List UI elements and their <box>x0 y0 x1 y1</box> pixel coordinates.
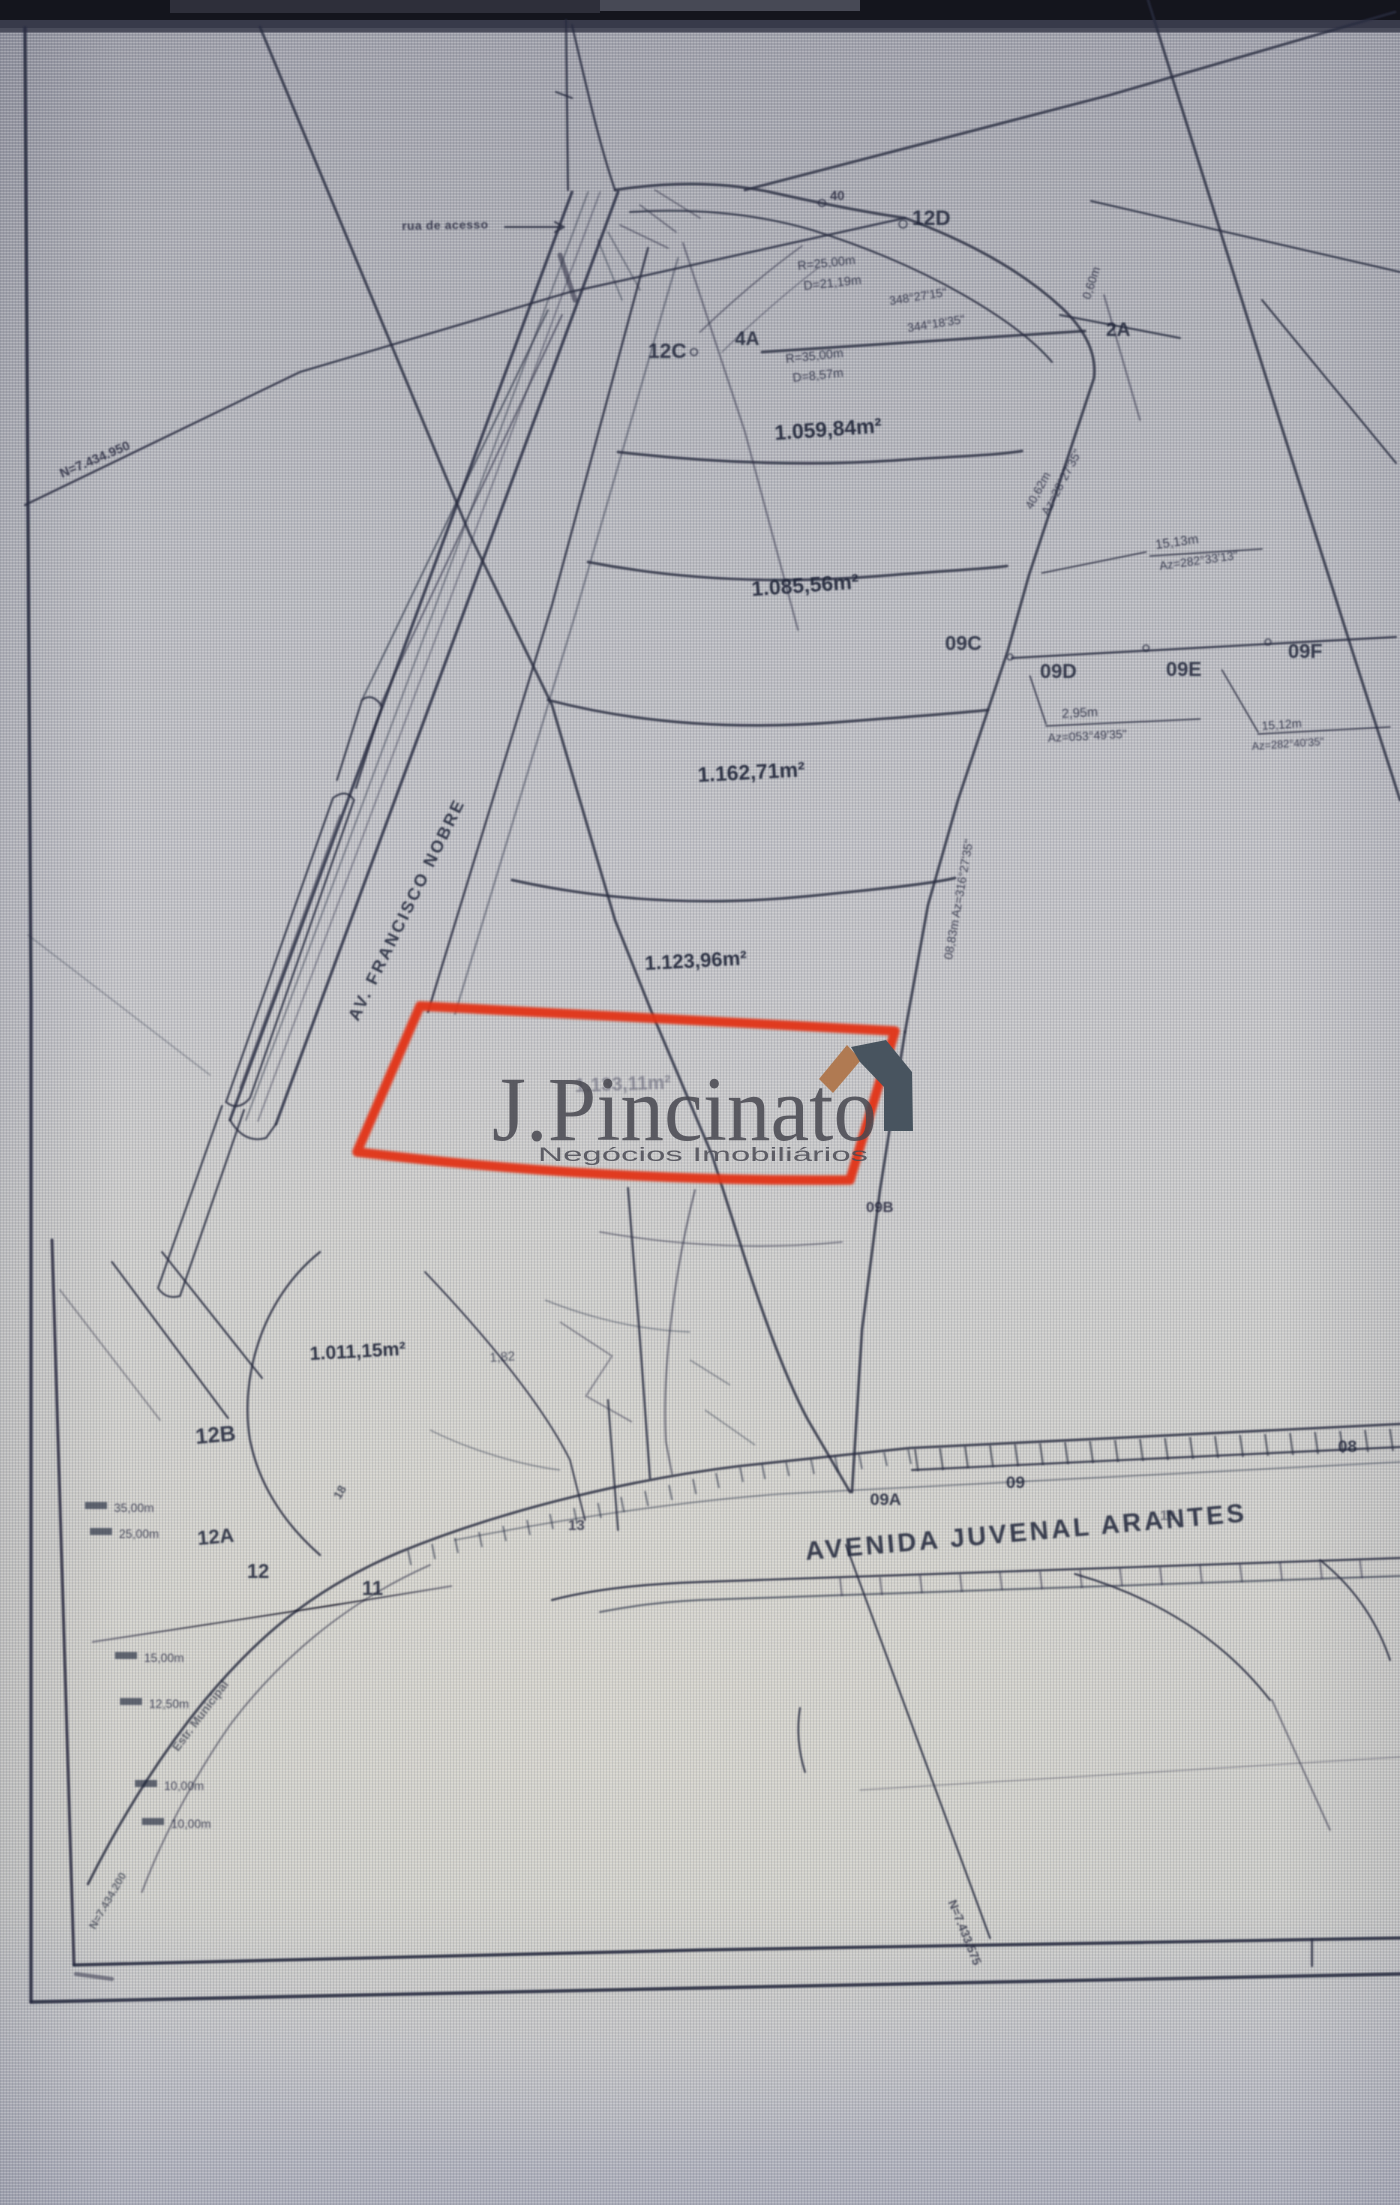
svg-text:12D: 12D <box>912 207 951 230</box>
svg-text:15,12m: 15,12m <box>1261 716 1302 733</box>
svg-text:09: 09 <box>1006 1473 1025 1492</box>
svg-text:11: 11 <box>362 1578 383 1600</box>
svg-text:Negócios Imobiliários: Negócios Imobiliários <box>538 1145 868 1166</box>
svg-text:10,00m: 10,00m <box>164 1779 204 1793</box>
svg-text:2,95m: 2,95m <box>1061 704 1098 721</box>
svg-text:10: 10 <box>1160 1507 1176 1523</box>
svg-text:10,00m: 10,00m <box>171 1817 211 1831</box>
svg-text:09A: 09A <box>870 1490 901 1509</box>
svg-text:12B: 12B <box>194 1421 236 1449</box>
svg-text:35,00m: 35,00m <box>114 1501 154 1515</box>
svg-text:12,50m: 12,50m <box>149 1697 189 1711</box>
svg-text:09D: 09D <box>1040 661 1077 683</box>
svg-text:09C: 09C <box>945 633 982 655</box>
svg-text:12C: 12C <box>648 340 687 363</box>
svg-text:2A: 2A <box>1106 320 1131 341</box>
svg-text:15,00m: 15,00m <box>144 1651 184 1665</box>
svg-text:4A: 4A <box>735 329 760 350</box>
svg-text:12: 12 <box>247 1561 269 1583</box>
svg-text:09E: 09E <box>1166 659 1202 681</box>
svg-text:40: 40 <box>830 188 844 203</box>
svg-text:rua de acesso: rua de acesso <box>402 217 489 233</box>
svg-text:25,00m: 25,00m <box>119 1527 159 1541</box>
svg-text:09F: 09F <box>1288 641 1322 663</box>
svg-text:09B: 09B <box>866 1199 894 1216</box>
svg-text:1,82: 1,82 <box>489 1348 515 1365</box>
svg-text:12A: 12A <box>197 1525 235 1550</box>
